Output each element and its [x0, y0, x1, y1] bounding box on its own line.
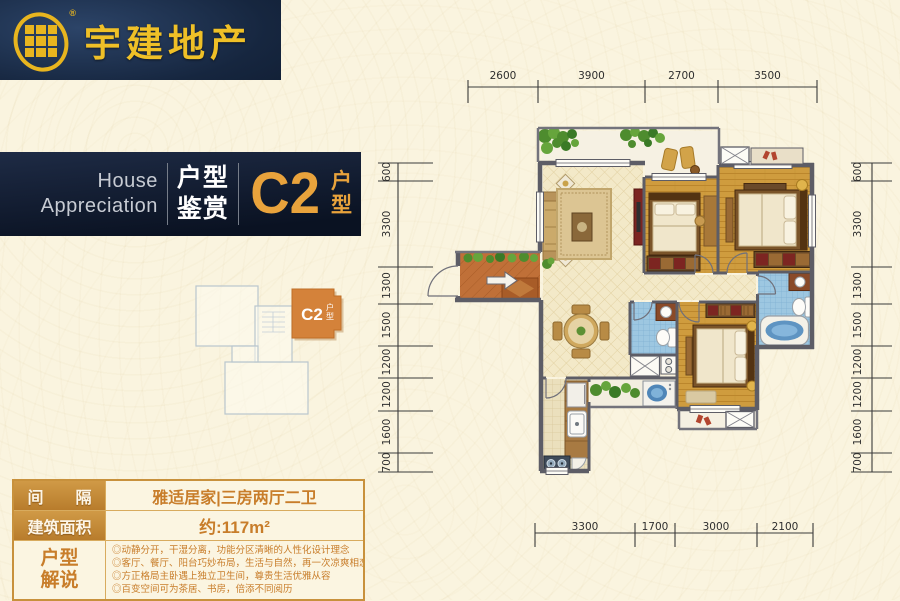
svg-text:1700: 1700 [642, 521, 669, 533]
svg-text:600: 600 [381, 162, 393, 182]
ac-unit-top [721, 147, 749, 164]
desc-bullet: ◎百变空间可为茶居、书房，倍添不同阅历 [112, 583, 357, 596]
svg-text:3500: 3500 [754, 70, 781, 82]
kitchen-counter [565, 381, 588, 458]
desc-bullet: ◎方正格局主卧遇上独立卫生间，尊贵生活优雅从容 [112, 570, 357, 583]
registered-trademark: ® [69, 8, 76, 18]
svg-text:1200: 1200 [852, 349, 864, 376]
toilet-bowl [657, 330, 670, 346]
svg-text:1500: 1500 [852, 312, 864, 339]
ac-unit-bottom [726, 412, 754, 428]
svg-text:1200: 1200 [852, 381, 864, 408]
banner-divider [238, 163, 239, 225]
row-value-partition: 雅适居家|三房两厅二卫 [106, 481, 363, 510]
svg-text:2100: 2100 [772, 521, 799, 533]
desc-bullet: ◎客厅、餐厅、阳台巧妙布局，生活与自然，再一次凉爽相恋 [112, 557, 357, 570]
company-name: 宇建地产 [84, 13, 252, 67]
svg-text:600: 600 [852, 162, 864, 182]
logo-grid-icon [25, 25, 57, 57]
sink [661, 307, 672, 318]
svg-text:1200: 1200 [381, 349, 393, 376]
sink [795, 277, 805, 287]
banner-chinese-top: 户型 [177, 163, 229, 194]
table-row: 间 隔 雅适居家|三房两厅二卫 [14, 481, 363, 511]
coffee-table [572, 213, 592, 241]
tv-stand [634, 189, 643, 245]
bedroom3-rug [686, 391, 716, 403]
svg-text:3900: 3900 [578, 70, 605, 82]
svg-text:1300: 1300 [381, 272, 393, 299]
svg-text:3300: 3300 [381, 211, 393, 238]
row-label-partition: 间 隔 [14, 481, 106, 510]
key-plan-unit-bottom: 型 [326, 312, 334, 321]
row-label-description: 户型 解说 [14, 541, 106, 599]
fridge-slot [631, 356, 660, 376]
shelf-top [751, 148, 803, 164]
washing-machine [643, 381, 675, 406]
bed-master [726, 180, 808, 251]
toilet-bowl [793, 299, 806, 316]
svg-text:3000: 3000 [703, 521, 730, 533]
svg-text:2700: 2700 [668, 70, 695, 82]
svg-text:1200: 1200 [381, 381, 393, 408]
svg-text:700: 700 [381, 452, 393, 472]
key-plan-unit-code: C2 [301, 305, 323, 324]
banner-english-line2: Appreciation [41, 194, 158, 219]
desc-label-line2: 解说 [40, 570, 78, 592]
wardrobe-master [754, 252, 811, 268]
svg-text:3300: 3300 [572, 521, 599, 533]
unit-info-table: 间 隔 雅适居家|三房两厅二卫 建筑面积 约:117m² 户型 解说 ◎动静分开… [12, 479, 365, 601]
svg-text:1600: 1600 [852, 419, 864, 446]
svg-text:700: 700 [852, 452, 864, 472]
key-plan-unit-top: 户 [326, 302, 334, 312]
unit-code-suffix: 户 型 [331, 170, 352, 218]
key-plan-outline [196, 286, 308, 414]
row-value-area: 约:117m² [106, 511, 363, 540]
bed-bedroom3 [686, 321, 757, 391]
banner-english-title: House Appreciation [41, 169, 158, 219]
wardrobe-bedroom3 [706, 304, 755, 318]
table-row: 建筑面积 约:117m² [14, 511, 363, 541]
table-row: 户型 解说 ◎动静分开，干湿分离，功能分区清晰的人性化设计理念◎客厅、餐厅、阳台… [14, 541, 363, 599]
unit-suffix-bottom: 型 [331, 194, 352, 218]
svg-text:3300: 3300 [852, 211, 864, 238]
floor-plan: 2600390027003500330017003000210060033001… [370, 55, 900, 600]
svg-text:1500: 1500 [381, 312, 393, 339]
svg-text:1300: 1300 [852, 272, 864, 299]
row-label-area: 建筑面积 [14, 511, 106, 540]
banner-divider [167, 163, 168, 225]
desc-bullet: ◎动静分开，干湿分离，功能分区清晰的人性化设计理念 [112, 544, 357, 557]
banner-english-line1: House [41, 169, 158, 194]
fridge [567, 383, 586, 407]
developer-logo-block: ® 宇建地产 [0, 0, 281, 80]
desc-label-line1: 户型 [40, 548, 78, 570]
unit-code: C2 [250, 165, 320, 223]
svg-text:2600: 2600 [490, 70, 517, 82]
building-key-plan: C2 户 型 [175, 268, 365, 428]
section-title-banner: House Appreciation 户型 鉴赏 C2 户 型 [0, 152, 361, 236]
banner-chinese-bottom: 鉴赏 [177, 194, 229, 225]
svg-text:1600: 1600 [381, 419, 393, 446]
mini-stove [661, 356, 677, 374]
unit-suffix-top: 户 [331, 170, 352, 194]
wardrobe-bedroom2 [647, 256, 700, 271]
company-logo-icon: ® [12, 11, 70, 69]
banner-chinese-title: 户型 鉴赏 [177, 163, 229, 225]
desc-bullets: ◎动静分开，干湿分离，功能分区清晰的人性化设计理念◎客厅、餐厅、阳台巧妙布局，生… [106, 541, 363, 599]
bed-bedroom2 [649, 193, 700, 255]
